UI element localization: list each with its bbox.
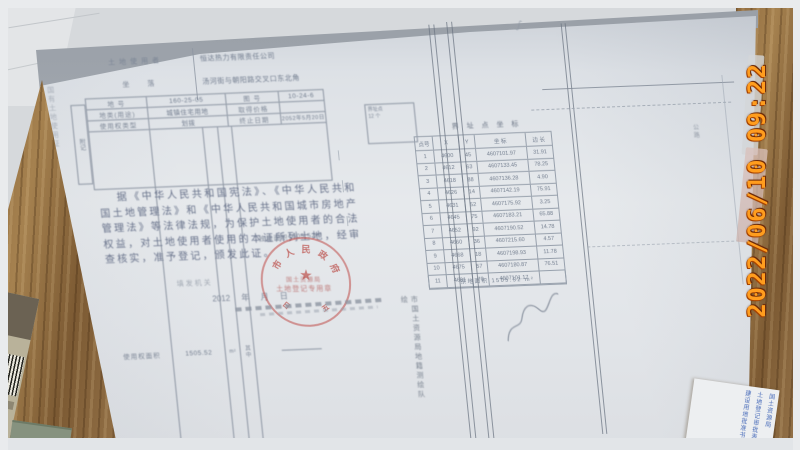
table-cell: 4 <box>420 188 438 200</box>
table-cell: 3.25 <box>531 196 558 209</box>
field-value-land-user: 恒达热力有限责任公司 <box>200 51 276 64</box>
parcel-sketch-line <box>721 75 743 284</box>
table-cell: 75.91 <box>530 183 557 196</box>
certificate-form: 地 号 160-25-05 图 号 10-24-6 地类(用途) 城镇住宅用地 … <box>85 89 333 190</box>
table-cell: 10 <box>427 263 445 275</box>
table-cell: 88 <box>462 174 479 186</box>
table-cell: 52 <box>464 199 481 211</box>
table-cell: 4607142.19 <box>479 184 531 198</box>
table-cell: 4607101.97 <box>475 147 527 161</box>
field-label-land-user: 土地使用者 <box>108 55 164 67</box>
table-cell: 4607180.87 <box>486 259 538 273</box>
certificate-content: 国有土地使用证 土地使用者 恒达热力有限责任公司 坐 落 汤河街与朝阳路交叉口东… <box>0 0 800 450</box>
frame-right <box>793 0 800 450</box>
table-cell: 14 <box>463 186 480 198</box>
table-cell: 75 <box>466 211 483 223</box>
handwritten-note <box>488 280 575 351</box>
fold-line <box>561 23 604 434</box>
table-cell: 4607190.52 <box>482 222 534 236</box>
table-cell: 3 <box>419 176 437 188</box>
table-cell: 92 <box>467 224 484 236</box>
table-cell: 45 <box>459 149 476 161</box>
table-cell: 36 <box>468 236 485 248</box>
table-cell: 2 <box>417 163 435 175</box>
table-cell: 18 <box>469 249 486 261</box>
camera-timestamp: 2022/06/10 09:22 <box>743 62 771 317</box>
parcel-sketch-dashed-line <box>587 240 739 247</box>
table-cell: 9 <box>426 250 444 262</box>
table-header-cell: 边 长 <box>524 132 551 146</box>
stamp-ring-char: 民 <box>302 242 311 256</box>
table-cell: 4607133.45 <box>476 159 528 173</box>
table-cell: 4607183.21 <box>481 209 533 223</box>
table-cell: 5 <box>421 200 439 212</box>
table-cell: 4.57 <box>535 233 562 246</box>
table-cell: 78.25 <box>527 158 554 171</box>
table-cell: 8 <box>425 238 443 250</box>
table-cell: 4607215.60 <box>484 234 536 248</box>
road-label: 公路 <box>690 124 701 140</box>
stamp-ring-char: 人 <box>282 245 296 261</box>
stamp-ring-char: 市 <box>269 257 285 271</box>
fold-line <box>565 23 608 434</box>
photo-of-document: 国有土地使用证 土地使用者 恒达热力有限责任公司 坐 落 汤河街与朝阳路交叉口东… <box>0 0 800 450</box>
table-cell: 6 <box>422 213 440 225</box>
margin-mark <box>338 150 340 160</box>
boundary-table: 点号XY坐 标边 长14600454607101.9731.9124612634… <box>414 131 567 289</box>
table-cell: 1 <box>416 151 434 163</box>
frame-top <box>0 0 800 8</box>
table-cell: 57 <box>471 261 488 273</box>
stamp-overlay-line2: 土地登记专用章 <box>257 283 352 293</box>
table-header-cell: 点号 <box>415 137 433 151</box>
frame-bottom <box>0 438 800 450</box>
parcel-sketch-dashed-line <box>531 102 731 111</box>
survey-info-box: 界址点 12 个 <box>364 102 418 144</box>
table-cell: 4607198.93 <box>485 247 537 261</box>
field-divider-line <box>192 48 198 100</box>
table-cell: 4607136.28 <box>477 172 529 186</box>
table-cell: 31.91 <box>526 146 553 159</box>
table-cell: 76.51 <box>537 258 564 271</box>
table-header-cell: Y <box>458 135 475 149</box>
sketch-curve-mark: ʃ <box>516 19 521 31</box>
sub-row-shared: 分摊面积 m² <box>281 348 345 450</box>
table-cell: 7 <box>424 225 442 237</box>
field-value-location: 汤河街与朝阳路交叉口东北角 <box>202 73 300 87</box>
survey-box-line2: 12 个 <box>368 112 413 121</box>
table-cell: 4607175.92 <box>480 197 532 211</box>
table-cell: 65.88 <box>532 208 559 221</box>
table-cell: 4.90 <box>528 171 555 184</box>
surveyor-note: 市国土资源局地籍测绘队绘 <box>398 296 426 402</box>
field-label-location: 坐 落 <box>122 78 163 90</box>
stamp-overlay-text: 国土资源局 土地登记专用章 <box>256 274 351 293</box>
stamp-ring-char: 府 <box>327 261 343 275</box>
table-cell: 14.78 <box>534 221 561 234</box>
stamp-ring-char: 政 <box>316 247 331 263</box>
table-cell: 11.78 <box>536 246 563 259</box>
table-cell: 63 <box>461 161 478 173</box>
issuing-agency-label: 填发机关 <box>176 278 213 289</box>
table-header-cell: 坐 标 <box>473 133 525 148</box>
frame-left <box>0 0 8 450</box>
